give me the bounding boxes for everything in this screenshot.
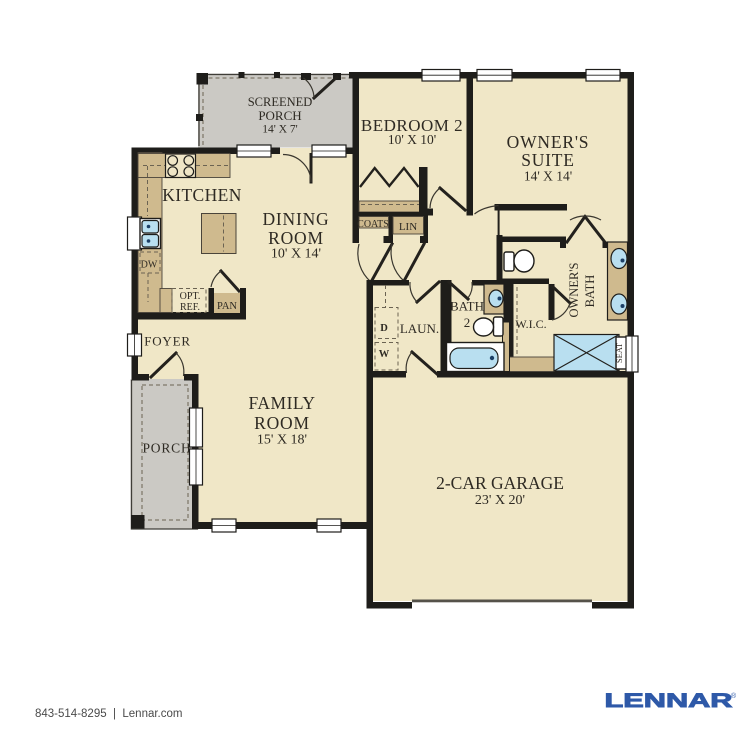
svg-text:14' X 14': 14' X 14' <box>524 169 572 184</box>
svg-text:ROOM: ROOM <box>268 228 324 248</box>
svg-text:D: D <box>380 323 388 334</box>
svg-text:23' X 20': 23' X 20' <box>475 493 525 508</box>
svg-text:10' X 14': 10' X 14' <box>271 247 321 262</box>
svg-text:W: W <box>379 349 390 360</box>
svg-text:ROOM: ROOM <box>254 413 310 433</box>
svg-text:PAN: PAN <box>217 301 237 312</box>
svg-text:FAMILY: FAMILY <box>248 393 315 413</box>
svg-text:2: 2 <box>464 315 471 330</box>
svg-text:KITCHEN: KITCHEN <box>162 185 242 205</box>
svg-text:DW: DW <box>141 260 158 271</box>
svg-text:BATH: BATH <box>450 299 484 314</box>
svg-text:BATH: BATH <box>583 275 597 308</box>
svg-text:LAUN.: LAUN. <box>400 321 439 336</box>
svg-text:15' X 18': 15' X 18' <box>257 433 307 448</box>
svg-text:SEAT: SEAT <box>614 342 624 363</box>
svg-text:843-514-8295 | Lennar.com: 843-514-8295 | Lennar.com <box>35 708 182 720</box>
svg-text:LENNAR: LENNAR <box>605 690 733 712</box>
svg-text:PORCH: PORCH <box>258 108 301 123</box>
svg-text:SUITE: SUITE <box>521 150 575 170</box>
svg-text:COATS: COATS <box>357 219 389 230</box>
svg-text:OPT.: OPT. <box>180 291 201 302</box>
svg-text:W.I.C.: W.I.C. <box>515 317 546 331</box>
svg-text:®: ® <box>731 692 737 700</box>
svg-text:SCREENED: SCREENED <box>248 95 313 109</box>
svg-text:REF.: REF. <box>180 302 200 313</box>
svg-text:14' X 7': 14' X 7' <box>262 124 297 136</box>
svg-text:FOYER: FOYER <box>144 334 191 349</box>
svg-text:LIN: LIN <box>399 221 417 233</box>
svg-text:OWNER'S: OWNER'S <box>567 262 581 317</box>
svg-text:10' X 10': 10' X 10' <box>388 132 436 147</box>
svg-text:DINING: DINING <box>262 209 329 229</box>
svg-text:OWNER'S: OWNER'S <box>507 132 590 152</box>
svg-text:PORCH: PORCH <box>142 441 191 456</box>
svg-text:2-CAR GARAGE: 2-CAR GARAGE <box>436 473 564 493</box>
